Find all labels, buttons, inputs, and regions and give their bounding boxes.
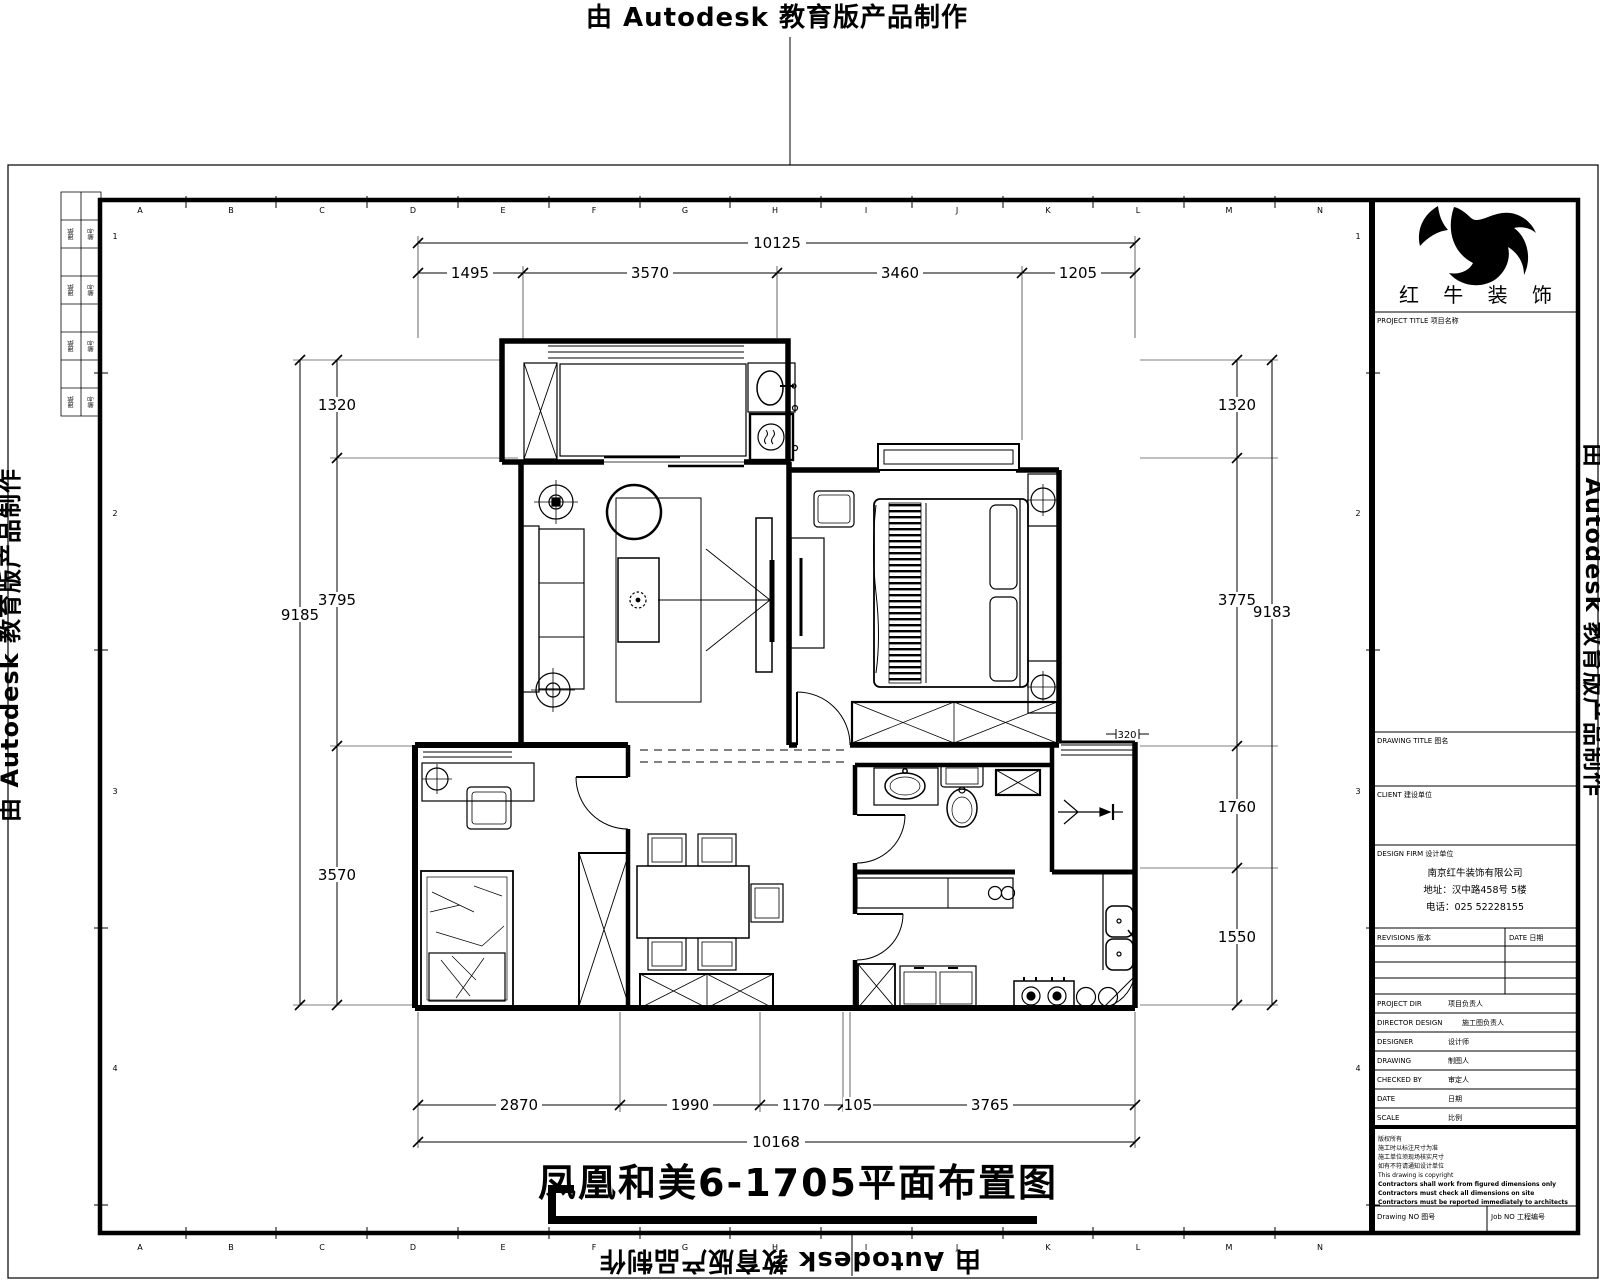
grid-row-label: 3	[112, 787, 117, 796]
ceiling-lamp	[534, 480, 578, 524]
edge-table-cell: 编号	[87, 284, 95, 296]
grid-references: A B C D E F G H I J K L M N A B C D E F …	[94, 196, 1380, 1252]
pillow2	[429, 953, 505, 1001]
dining-chair	[648, 938, 686, 970]
dim-right-overall: 9183	[1253, 603, 1291, 621]
grid-col-label: B	[228, 1243, 234, 1252]
autodesk-banner-left: 由 Autodesk 教育版产品制作	[0, 468, 24, 822]
autodesk-banner-bottom: 由 Autodesk 教育版产品制作	[599, 1245, 981, 1276]
tb-revisions-label: REVISIONS 版本	[1377, 933, 1431, 942]
grid-row-label: 1	[1355, 232, 1360, 241]
tb-client-label: CLIENT 建设单位	[1377, 790, 1432, 799]
stock-pot	[1077, 988, 1096, 1007]
sheet-frame	[8, 37, 1598, 1278]
dim-right-seg: 1550	[1218, 928, 1256, 946]
desk-chair	[814, 491, 854, 527]
grid-col-label: J	[955, 206, 958, 215]
tb-note: 施工单位须现场核实尺寸	[1378, 1153, 1444, 1161]
tb-note: Contractors must check all dimensions on…	[1378, 1190, 1534, 1197]
dining-chair	[751, 884, 783, 922]
dim-bottom-seg: 3765	[971, 1096, 1009, 1114]
svg-text:320: 320	[1117, 730, 1136, 741]
kitchen-counter	[857, 878, 1013, 908]
tb-row-en: DIRECTOR DESIGN	[1377, 1019, 1443, 1027]
kitchen-door-swing	[857, 914, 903, 960]
tb-row-cn: 制图人	[1448, 1056, 1469, 1065]
grid-col-label: E	[500, 206, 505, 215]
dim-top-seg: 1495	[451, 264, 489, 282]
grid-col-label: F	[592, 1243, 597, 1252]
nightstand	[1027, 474, 1059, 526]
sofa	[522, 526, 584, 692]
sheet-title: 凤凰和美6-1705平面布置图	[538, 1161, 1058, 1205]
hob-circle	[989, 887, 1002, 900]
bay-window	[878, 444, 1019, 470]
tb-note: This drawing is copyright	[1377, 1172, 1454, 1179]
balcony-counter	[560, 364, 746, 456]
tb-row-en: DATE	[1377, 1095, 1395, 1103]
dim-top-seg: 3570	[631, 264, 669, 282]
grid-col-label: C	[319, 1243, 325, 1252]
base-cabinet	[900, 966, 976, 1008]
tb-note: 施工时以标注尺寸为准	[1378, 1144, 1438, 1152]
bathroom-door-swing	[857, 815, 905, 863]
tb-note: 如有不符请通知设计单位	[1378, 1162, 1444, 1170]
grid-row-label: 3	[1355, 787, 1360, 796]
tb-note: Contractors must be reported immediately…	[1378, 1199, 1568, 1206]
corner-counter	[1103, 976, 1135, 1008]
dim-bottom-seg: 105	[844, 1096, 873, 1114]
title-underline	[548, 1216, 1037, 1224]
grid-col-label: D	[410, 206, 416, 215]
edge-table-cell: 编号	[87, 340, 95, 352]
grid-col-label: M	[1226, 206, 1233, 215]
tb-firm-line: 地址：汉中路458号 5楼	[1423, 884, 1527, 896]
dim-right-seg: 1760	[1218, 798, 1256, 816]
grid-col-label: N	[1317, 1243, 1323, 1252]
grid-col-label: I	[865, 206, 867, 215]
sideboard	[640, 974, 773, 1008]
tb-row-cn: 设计师	[1448, 1037, 1469, 1046]
tb-row-cn: 审定人	[1448, 1075, 1469, 1084]
grid-col-label: L	[1136, 206, 1141, 215]
grid-col-label: A	[137, 1243, 143, 1252]
grid-row-label: 4	[1355, 1064, 1360, 1073]
grid-col-label: H	[772, 1243, 778, 1252]
dim-top-seg: 1205	[1059, 264, 1097, 282]
edge-table-cell: 图纸	[67, 340, 75, 352]
grid-row-label: 2	[1355, 509, 1360, 518]
dim-top-seg: 3460	[881, 264, 919, 282]
desk	[791, 538, 824, 648]
tb-date-col-label: DATE 日期	[1509, 934, 1543, 942]
grid-col-label: B	[228, 206, 234, 215]
tb-job-no: Job NO 工程编号	[1490, 1212, 1545, 1221]
dim-bottom-seg: 1170	[782, 1096, 820, 1114]
dim-bottom-overall: 10168	[752, 1133, 800, 1151]
balcony-fixtures	[524, 363, 798, 460]
grid-col-label: G	[682, 1243, 688, 1252]
windows	[423, 346, 1133, 758]
bedroom2-furniture	[421, 763, 629, 1006]
grid-col-label: G	[682, 206, 688, 215]
kitchen-sink	[1106, 906, 1134, 970]
vent-box	[996, 770, 1040, 795]
coffee-table	[618, 558, 659, 642]
kitchen-column	[858, 964, 895, 1008]
level-marker: 320	[1106, 729, 1149, 741]
bedroom2-door-swing	[576, 777, 628, 829]
grid-col-label: M	[1226, 1243, 1233, 1252]
dining-chair	[648, 834, 686, 866]
toilet	[941, 765, 983, 827]
washing-machine	[524, 363, 557, 459]
dining-furniture	[637, 834, 783, 1008]
grid-col-label: H	[772, 206, 778, 215]
edge-table-cell: 编号	[87, 396, 95, 408]
tb-note: Contractors shall work from figured dime…	[1378, 1181, 1556, 1188]
tb-row-en: DRAWING	[1377, 1057, 1411, 1065]
grid-col-label: K	[1045, 1243, 1051, 1252]
nightstand	[1027, 661, 1059, 713]
edge-table-cell: 编号	[87, 228, 95, 240]
dim-left-seg: 1320	[318, 396, 356, 414]
grid-col-label: N	[1317, 206, 1323, 215]
dining-chair	[698, 834, 736, 866]
tb-row-cn: 项目负责人	[1448, 999, 1483, 1008]
edge-table-cell: 图纸	[67, 284, 75, 296]
tb-row-cn: 施工图负责人	[1462, 1018, 1504, 1027]
grid-col-label: L	[1136, 1243, 1141, 1252]
grid-row-label: 4	[112, 1064, 117, 1073]
walls	[415, 341, 1135, 1008]
blanket-creases	[430, 886, 504, 946]
pillow	[990, 597, 1017, 681]
tb-project-title-label: PROJECT TITLE 项目名称	[1377, 316, 1459, 325]
blanket-stripes	[889, 503, 921, 683]
floor-lamp	[531, 668, 575, 712]
tb-design-firm-label: DESIGN FIRM 设计单位	[1377, 849, 1453, 858]
grid-col-label: D	[410, 1243, 416, 1252]
dim-left-seg: 3795	[318, 591, 356, 609]
ceiling-lamp-small	[422, 764, 452, 794]
grid-row-label: 2	[112, 509, 117, 518]
tb-drawing-no: Drawing NO 图号	[1377, 1213, 1435, 1221]
tb-row-en: SCALE	[1377, 1114, 1399, 1122]
dining-chair	[698, 938, 736, 970]
grid-col-label: A	[137, 206, 143, 215]
dining-table	[637, 866, 749, 938]
desk-chair2	[467, 787, 511, 829]
dim-bottom-seg: 1990	[671, 1096, 709, 1114]
tv-unit	[658, 518, 772, 672]
hall-beam-dashed	[640, 750, 850, 762]
brand-logo	[1419, 206, 1536, 285]
round-table	[607, 485, 661, 539]
service-balcony	[1058, 800, 1123, 824]
kitchen-fixtures	[857, 872, 1135, 1010]
tb-row-en: PROJECT DIR	[1377, 1000, 1422, 1008]
grid-col-label: J	[955, 1243, 958, 1252]
floor-plan	[415, 341, 1135, 1010]
edge-table-cell: 图纸	[67, 228, 75, 240]
grid-col-label: C	[319, 206, 325, 215]
double-bed	[874, 499, 1029, 687]
pillow	[990, 505, 1017, 589]
doors	[576, 692, 905, 960]
grid-col-label: K	[1045, 206, 1051, 215]
cad-sheet: 由 Autodesk 教育版产品制作 由 Autodesk 教育版产品制作 由 …	[0, 0, 1600, 1280]
tv-view-lines	[658, 549, 770, 651]
living-room-furniture	[522, 480, 772, 712]
wardrobe	[852, 702, 1057, 743]
wash-basin	[874, 768, 938, 805]
title-block: 红 牛 装 饰 PROJECT TITLE 项目名称 DRAWING TITLE…	[1372, 200, 1578, 1233]
sheet-title-group: 凤凰和美6-1705平面布置图	[538, 1161, 1058, 1224]
balcony-sliding-door	[604, 457, 744, 466]
tb-row-cn: 日期	[1448, 1095, 1462, 1103]
tb-firm-line: 南京红牛装饰有限公司	[1427, 867, 1522, 879]
single-bed	[421, 871, 513, 1006]
bathroom-fixtures	[874, 765, 1040, 827]
dim-right-seg: 1320	[1218, 396, 1256, 414]
dim-left-overall: 9185	[281, 606, 319, 624]
autodesk-banner-right: 由 Autodesk 教育版产品制作	[1580, 443, 1600, 797]
edge-table: 图纸 编号 图纸 编号 图纸 编号 图纸 编号	[61, 192, 101, 416]
grid-col-label: F	[592, 206, 597, 215]
tb-row-cn: 比例	[1448, 1113, 1462, 1122]
dim-right-seg: 3775	[1218, 591, 1256, 609]
master-bedroom-door-swing	[797, 692, 850, 745]
tb-note: 版权所有	[1378, 1135, 1402, 1143]
tb-firm-line: 电话：025 52228155	[1426, 901, 1524, 913]
tb-row-en: CHECKED BY	[1377, 1076, 1423, 1084]
autodesk-banner-top: 由 Autodesk 教育版产品制作	[586, 2, 968, 33]
grid-col-label: I	[865, 1243, 867, 1252]
dim-left-seg: 3570	[318, 866, 356, 884]
cad-canvas: 由 Autodesk 教育版产品制作 由 Autodesk 教育版产品制作 由 …	[0, 0, 1600, 1280]
tb-drawing-title-label: DRAWING TITLE 图名	[1377, 736, 1448, 745]
edge-table-cell: 图纸	[67, 396, 75, 408]
brand-name: 红 牛 装 饰	[1399, 283, 1561, 307]
wardrobe2	[579, 853, 629, 1006]
drain-arrow	[1058, 800, 1123, 824]
tb-row-en: DESIGNER	[1377, 1038, 1413, 1046]
dim-top-overall: 10125	[753, 234, 801, 252]
master-bedroom-furniture	[791, 474, 1059, 743]
grid-col-label: E	[500, 1243, 505, 1252]
grid-row-label: 1	[112, 232, 117, 241]
dim-bottom-seg: 2870	[500, 1096, 538, 1114]
